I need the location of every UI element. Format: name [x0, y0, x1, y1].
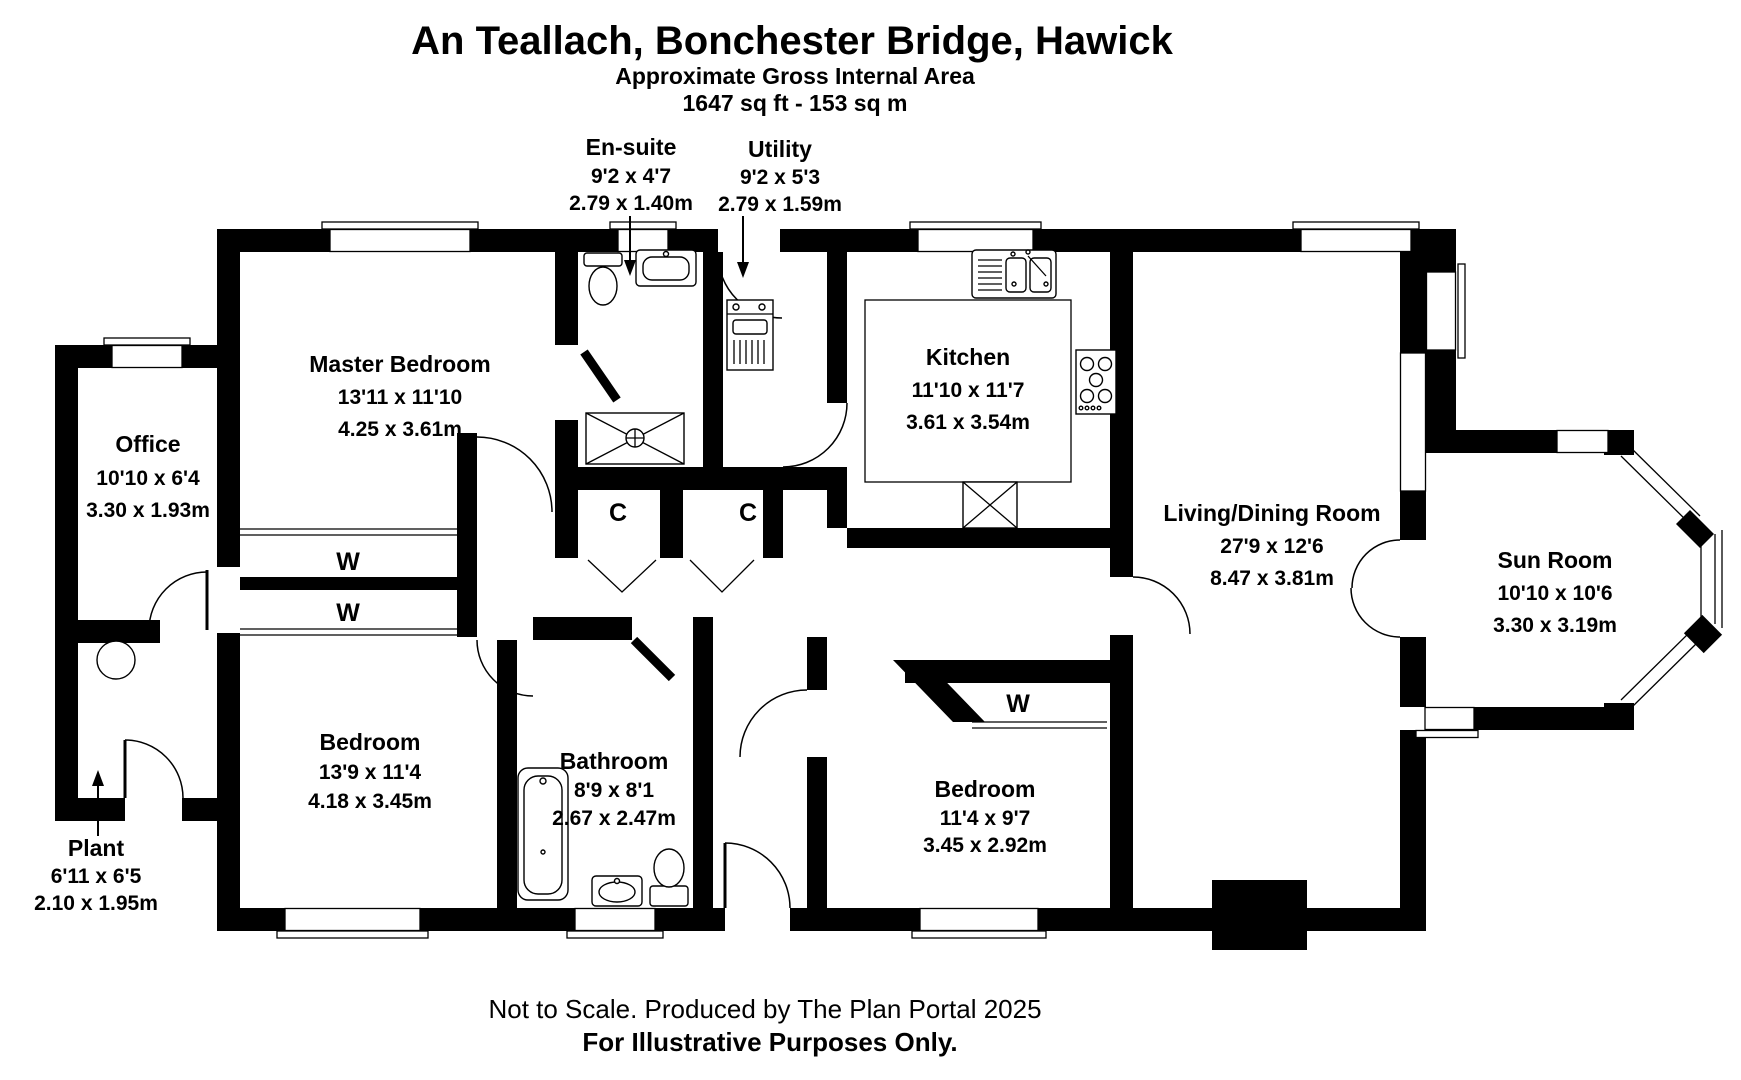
wall	[182, 798, 240, 821]
room-metric: 2.79 x 1.40m	[569, 192, 693, 215]
window-kitchen	[910, 222, 1041, 252]
room-imperial: 6'11 x 6'5	[51, 865, 142, 888]
wall	[55, 798, 125, 821]
room-imperial: 13'11 x 11'10	[338, 386, 462, 409]
arrowhead-icon	[92, 770, 104, 786]
hob-knob	[1097, 406, 1101, 410]
wall	[827, 467, 847, 528]
wall	[217, 229, 330, 252]
basin-bathroom	[592, 876, 642, 906]
label-master-bedroom: Master Bedroom 13'11 x 11'10 4.25 x 3.61…	[309, 351, 490, 441]
wall	[790, 908, 920, 931]
bath-inner	[524, 776, 562, 894]
wall	[240, 577, 457, 590]
window-sill	[277, 931, 428, 938]
window-pane	[112, 346, 182, 368]
door-leaf-bathroom	[634, 640, 672, 678]
washer-knob	[759, 304, 765, 310]
door-arc-sunroom-upper	[1352, 540, 1400, 588]
window-sunroom-south	[1416, 708, 1478, 738]
subtitle-area: Approximate Gross Internal Area	[615, 63, 975, 89]
room-imperial: 8'9 x 8'1	[574, 779, 654, 802]
toilet-bowl	[654, 849, 684, 887]
label-office: Office 10'10 x 6'4 3.30 x 1.93m	[86, 431, 210, 522]
window-pane	[618, 230, 668, 252]
wall	[1400, 252, 1426, 353]
wall	[827, 252, 847, 403]
wall	[1400, 491, 1426, 540]
window-sill	[910, 222, 1041, 229]
room-metric: 3.30 x 3.19m	[1493, 614, 1617, 637]
footer-purpose: For Illustrative Purposes Only.	[582, 1027, 957, 1057]
basin-bowl	[643, 257, 689, 280]
hob-ring	[1099, 390, 1112, 403]
wall	[763, 490, 783, 558]
label-bathroom: Bathroom 8'9 x 8'1 2.67 x 2.47m	[552, 748, 676, 830]
wall	[217, 908, 285, 931]
cupboard-label: C	[609, 499, 627, 527]
page-title: An Teallach, Bonchester Bridge, Hawick	[411, 19, 1173, 63]
window-pane	[920, 909, 1038, 931]
leader-utility	[737, 216, 749, 278]
hob-ring	[1081, 358, 1094, 371]
window-pane	[1557, 431, 1608, 453]
room-name: Bedroom	[935, 776, 1036, 802]
toilet-bathroom	[650, 849, 688, 906]
label-sun-room: Sun Room 10'10 x 10'6 3.30 x 3.19m	[1493, 547, 1617, 637]
sink-basin	[1006, 258, 1026, 292]
label-bedroom-right: Bedroom 11'4 x 9'7 3.45 x 2.92m	[923, 776, 1047, 857]
label-utility: Utility 9'2 x 5'3 2.79 x 1.59m	[718, 136, 842, 216]
window-sunroom-north	[1557, 431, 1608, 453]
wall	[703, 252, 723, 467]
walls	[55, 229, 1722, 950]
room-name: Office	[115, 431, 180, 457]
room-name: Master Bedroom	[309, 351, 490, 377]
wall	[1411, 229, 1456, 252]
bay-post	[1684, 615, 1722, 653]
window-pane	[1425, 708, 1474, 730]
door-arc-sunroom-lower	[1351, 588, 1400, 637]
bath-plug	[541, 850, 545, 854]
window-pane	[575, 909, 655, 931]
basin-bowl	[599, 882, 635, 902]
door-arc-plant	[125, 740, 183, 798]
leader-arrows	[92, 216, 749, 836]
hob-knob	[1085, 406, 1089, 410]
hob-knob	[1091, 406, 1095, 410]
room-metric: 2.10 x 1.95m	[34, 892, 158, 915]
window-pane	[1301, 230, 1411, 252]
hob	[1076, 350, 1116, 414]
floor-plan-page: An Teallach, Bonchester Bridge, Hawick A…	[0, 0, 1741, 1080]
toilet-cistern	[650, 886, 688, 906]
door-leaf-ensuite	[584, 352, 617, 400]
window-line	[1630, 640, 1700, 709]
wall	[555, 467, 847, 490]
wall	[693, 617, 713, 908]
wall	[457, 433, 477, 637]
wall	[1425, 430, 1557, 453]
window-bathroom	[567, 909, 663, 939]
window-line	[1630, 447, 1700, 516]
window-pane	[1401, 353, 1426, 491]
wall	[1033, 229, 1301, 252]
window-line	[1621, 631, 1691, 700]
wardrobe-label: W	[336, 599, 360, 627]
window-pane	[1427, 272, 1456, 350]
sink-basin	[1030, 258, 1051, 292]
washer-knob	[733, 304, 739, 310]
window-sill	[912, 931, 1046, 938]
room-name: Bathroom	[560, 748, 669, 774]
door-arc-front-entrance	[725, 843, 790, 908]
basin-ensuite	[636, 250, 696, 286]
airing-cupboard	[963, 482, 1017, 528]
sink-plug	[1044, 282, 1048, 286]
bifold-door-cupboard-1	[588, 560, 656, 592]
room-name: Living/Dining Room	[1163, 500, 1380, 526]
bifold-door-cupboard-2	[690, 560, 754, 592]
chimney	[1212, 880, 1307, 950]
door-arc-hall-living	[1133, 577, 1190, 634]
window-ensuite	[610, 222, 676, 252]
room-metric: 3.30 x 1.93m	[86, 499, 210, 522]
bath	[518, 768, 568, 900]
toilet-bowl	[589, 267, 617, 305]
room-imperial: 13'9 x 11'4	[319, 761, 422, 784]
wall	[1604, 703, 1634, 730]
wall	[807, 637, 827, 690]
label-kitchen: Kitchen 11'10 x 11'7 3.61 x 3.54m	[906, 344, 1030, 434]
window-bay-east	[1701, 530, 1722, 628]
door-arc-kitchen	[783, 403, 847, 467]
basin-tap	[615, 879, 620, 884]
wall	[497, 640, 517, 908]
hob-ring	[1090, 374, 1103, 387]
room-name: Sun Room	[1498, 547, 1613, 573]
room-metric: 4.18 x 3.45m	[308, 790, 432, 813]
sliding-doors-wardrobe-bedroom-left	[240, 629, 457, 635]
subtitle-size: 1647 sq ft - 153 sq m	[683, 90, 908, 116]
room-imperial: 10'10 x 6'4	[96, 467, 200, 490]
hob-knob	[1079, 406, 1083, 410]
wall	[1470, 707, 1615, 730]
room-metric: 3.61 x 3.54m	[906, 411, 1030, 434]
toilet-cistern	[584, 253, 622, 266]
wall	[668, 229, 718, 252]
header: An Teallach, Bonchester Bridge, Hawick A…	[411, 19, 1173, 116]
wall	[660, 490, 683, 558]
room-metric: 2.79 x 1.59m	[718, 193, 842, 216]
label-plant: Plant 6'11 x 6'5 2.10 x 1.95m	[34, 835, 158, 915]
room-metric: 4.25 x 3.61m	[338, 418, 462, 441]
footer-disclaimer: Not to Scale. Produced by The Plan Porta…	[488, 994, 1041, 1024]
wall	[217, 633, 240, 908]
cupboard-label: C	[739, 499, 757, 527]
room-name: Bedroom	[320, 729, 421, 755]
arrowhead-icon	[624, 260, 636, 276]
window-bedroom-right	[912, 909, 1046, 939]
wardrobe-label: W	[336, 548, 360, 576]
wall	[780, 229, 918, 252]
door-arc-bedroom-right	[740, 690, 807, 757]
window-sill	[104, 338, 190, 345]
room-metric: 8.47 x 3.81m	[1210, 567, 1334, 590]
label-ensuite: En-suite 9'2 x 4'7 2.79 x 1.40m	[569, 134, 693, 215]
wall	[182, 345, 217, 368]
sink-tap-dot	[1011, 252, 1015, 256]
kitchen-sink	[972, 250, 1056, 298]
wardrobe-label: W	[1006, 690, 1030, 718]
window-sill	[1458, 264, 1465, 358]
window-pane	[285, 909, 420, 931]
label-bedroom-left: Bedroom 13'9 x 11'4 4.18 x 3.45m	[308, 729, 432, 813]
shower-tray	[586, 413, 684, 464]
room-imperial: 9'2 x 4'7	[591, 165, 671, 188]
window-pane	[330, 230, 470, 252]
room-name: Plant	[68, 835, 125, 861]
wall	[470, 229, 618, 252]
floor-plan-canvas: An Teallach, Bonchester Bridge, Hawick A…	[0, 0, 1741, 1080]
wall	[1400, 730, 1426, 908]
label-living-dining: Living/Dining Room 27'9 x 12'6 8.47 x 3.…	[1163, 500, 1380, 590]
bath-tap	[540, 778, 546, 784]
wall	[55, 345, 78, 821]
arrowhead-icon	[737, 262, 749, 278]
sliding-doors-wardrobe-hall	[240, 529, 457, 535]
room-metric: 2.67 x 2.47m	[552, 807, 676, 830]
window-living-north	[1293, 222, 1419, 252]
sliding-doors-wardrobe-bedroom-right	[972, 722, 1107, 728]
window-line	[1621, 456, 1691, 525]
room-imperial: 27'9 x 12'6	[1220, 535, 1323, 558]
window-bedroom-left	[277, 909, 428, 939]
wall	[420, 908, 575, 931]
wall	[1426, 252, 1456, 272]
window-living-east	[1401, 353, 1426, 491]
room-name: Utility	[748, 136, 812, 162]
room-imperial: 10'10 x 10'6	[1497, 582, 1612, 605]
wall	[533, 617, 632, 640]
room-name: Kitchen	[926, 344, 1010, 370]
window-sill	[1293, 222, 1419, 229]
sink-plug	[1012, 282, 1016, 286]
window-sill	[1416, 731, 1478, 738]
window-wing	[104, 338, 190, 368]
wall	[217, 252, 240, 567]
wall	[1400, 637, 1426, 707]
room-imperial: 9'2 x 5'3	[740, 166, 820, 189]
wall	[78, 620, 160, 643]
washing-machine	[727, 300, 773, 370]
window-sill	[322, 222, 478, 229]
window-sill	[567, 931, 663, 938]
window-pane	[918, 230, 1033, 252]
washer-drawer	[733, 320, 767, 334]
door-arc-master	[477, 437, 552, 512]
window-east-upper	[1427, 264, 1466, 358]
room-metric: 3.45 x 2.92m	[923, 834, 1047, 857]
room-imperial: 11'10 x 11'7	[912, 379, 1025, 402]
footer: Not to Scale. Produced by The Plan Porta…	[488, 994, 1041, 1057]
wall	[807, 757, 827, 908]
room-name: En-suite	[586, 134, 677, 160]
window-sill	[610, 222, 676, 229]
toilet-ensuite	[584, 253, 622, 305]
water-tank	[97, 641, 135, 679]
hob-ring	[1081, 390, 1094, 403]
wall	[847, 528, 1118, 548]
sink-tap-dot	[1026, 250, 1030, 254]
hob-ring	[1099, 358, 1112, 371]
basin-tap	[664, 252, 669, 257]
window-master	[322, 222, 478, 252]
window-bay-southeast	[1621, 631, 1700, 709]
room-imperial: 11'4 x 9'7	[940, 807, 1031, 830]
wall	[655, 908, 725, 931]
wall	[555, 252, 578, 345]
